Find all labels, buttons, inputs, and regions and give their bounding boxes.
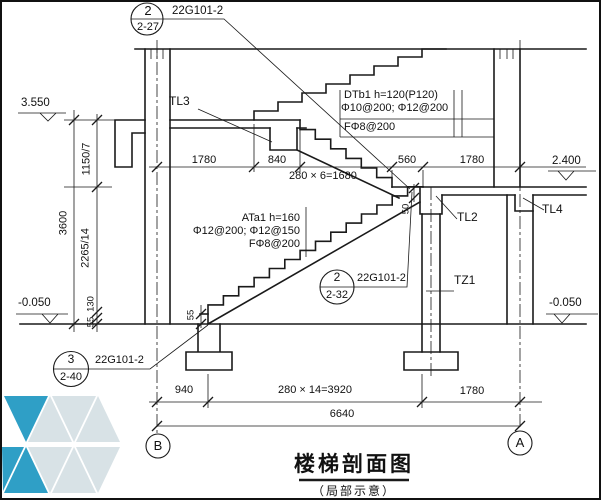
dim-bottom-940: 940 — [175, 385, 193, 396]
stair-section-drawing: 2 2-27 22G101-2 3.550 2.400 -0.050 -0.05… — [0, 0, 601, 500]
note-ata1-line2: Φ12@200; Φ12@150 — [193, 226, 300, 237]
dim-55-left: 55 — [86, 317, 96, 328]
dim-50: 50 — [401, 204, 411, 215]
tl2-leader — [436, 196, 457, 219]
dim-mid-560: 560 — [398, 155, 416, 166]
dim-total-6640: 6640 — [330, 409, 354, 420]
dim-1150-7: 1150/7 — [82, 143, 93, 176]
grid-label-a: A — [516, 436, 525, 449]
dim-130: 130 — [86, 296, 96, 312]
label-tl4: TL4 — [542, 203, 563, 215]
detail-bottom-number: 3 — [68, 353, 75, 365]
drawing-subtitle: （局部示意） — [312, 485, 396, 497]
beam-tl4 — [515, 195, 533, 211]
footing-left — [186, 324, 232, 370]
label-tl3: TL3 — [169, 95, 190, 107]
lower-flight-soffit — [208, 202, 420, 324]
dim-55-base: 55 — [186, 310, 196, 321]
dim-mid-1780-left: 1780 — [192, 155, 216, 166]
level-neg0050-right-label: -0.050 — [549, 298, 582, 310]
level-marker-3550 — [18, 113, 66, 121]
tl3-leader — [198, 109, 272, 142]
corner-logo — [2, 396, 120, 493]
drawing-title: 楼梯剖面图 — [294, 454, 414, 475]
detail-bottom-standard: 22G101-2 — [95, 355, 144, 366]
dim-bottom-280x14: 280 × 14=3920 — [278, 385, 352, 396]
detail-top-sheet: 2-27 — [137, 22, 159, 33]
detail-mid-sheet: 2-32 — [326, 290, 348, 301]
note-dtb1-line1: DTb1 h=120(P120) — [344, 90, 438, 101]
detail-mid-number: 2 — [334, 271, 341, 283]
dim-2265-14: 2265/14 — [81, 228, 92, 268]
stairwell-edge-lines — [454, 90, 462, 137]
note-dtb1-line2: Φ10@200; Φ12@200 — [341, 103, 448, 114]
level-marker-neg0050-right — [546, 314, 598, 323]
note-dtb1-line3: FΦ8@200 — [344, 122, 395, 133]
right-wall-upper — [494, 49, 520, 187]
label-tz1: TZ1 — [454, 274, 475, 286]
dim-3600: 3600 — [59, 211, 70, 235]
drawing-canvas — [2, 2, 601, 500]
dim-mid-1780-right: 1780 — [460, 155, 484, 166]
structure-lines — [20, 49, 586, 370]
dim-bottom-1780: 1780 — [460, 386, 484, 397]
wall-top-ticks — [151, 49, 513, 59]
left-wall — [145, 49, 170, 324]
label-tl2: TL2 — [457, 211, 478, 223]
level-2400-label: 2.400 — [552, 156, 581, 168]
dim-mid-840: 840 — [268, 155, 286, 166]
note-ata1-line3: FΦ8@200 — [249, 239, 300, 250]
grid-label-b: B — [154, 439, 163, 452]
beam-tl3 — [270, 128, 297, 150]
level-neg0050-left-label: -0.050 — [18, 298, 51, 310]
level-marker-2400 — [548, 171, 596, 180]
level-marker-neg0050-left — [16, 314, 68, 323]
detail-mid-standard: 22G101-2 — [357, 273, 406, 284]
landing-slab-2400 — [392, 187, 586, 195]
detail-top-number: 2 — [144, 4, 151, 17]
level-3550-label: 3.550 — [21, 98, 50, 110]
dim-mid-280x6: 280 × 6=1680 — [289, 171, 357, 182]
floor-slab-left — [115, 120, 145, 167]
lower-flight-steps — [208, 187, 423, 324]
detail-bottom-sheet: 2-40 — [60, 372, 82, 383]
detail-top-standard: 22G101-2 — [172, 6, 223, 18]
note-ata1-line1: ATa1 h=160 — [242, 213, 300, 224]
